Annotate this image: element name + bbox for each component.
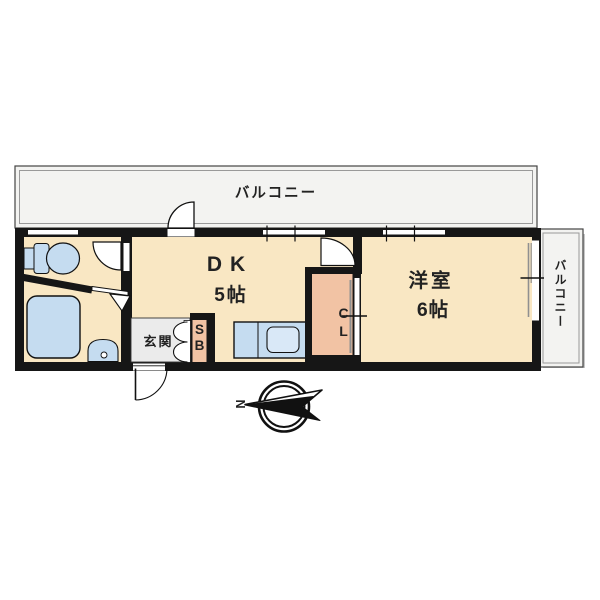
bathtub-icon — [27, 296, 80, 358]
dk-window — [263, 230, 325, 235]
entrance-door-swing — [136, 369, 168, 401]
sanitary-unit — [21, 237, 132, 362]
entrance-label: 玄関 — [143, 334, 173, 349]
toilet-tank-icon — [24, 248, 35, 269]
floor-plan-canvas: バルコニー バルコニー — [0, 0, 600, 600]
shoebox-label-b: B — [195, 338, 205, 353]
western-room-name-label: 洋室 — [408, 269, 453, 292]
toilet-bowl-icon — [47, 243, 80, 274]
closet-label-c: C — [338, 305, 348, 321]
floor-plan-page: バルコニー バルコニー — [0, 0, 600, 600]
kitchen-sink-icon — [267, 327, 299, 353]
compass-north-label: N — [233, 399, 247, 408]
dk-name-label: DK — [207, 253, 253, 276]
balcony-right: バルコニー — [539, 229, 585, 368]
balcony-top-label: バルコニー — [235, 185, 317, 202]
balcony-door-gap — [168, 229, 195, 237]
toilet-window — [28, 230, 78, 235]
closet-label-l: L — [339, 323, 348, 339]
western-room-size-label: 6帖 — [417, 298, 449, 321]
compass: N — [233, 382, 322, 432]
room-window-right — [532, 241, 539, 321]
kitchen-unit — [234, 322, 306, 358]
balcony-right-label: バルコニー — [553, 259, 567, 329]
entrance-door-gap — [133, 364, 165, 371]
washbasin-drain-icon — [101, 352, 107, 358]
balcony-top: バルコニー — [15, 166, 537, 228]
dk-size-label: 5帖 — [214, 283, 248, 306]
toilet-door-gap — [124, 243, 130, 271]
shoebox-label-s: S — [195, 322, 204, 337]
